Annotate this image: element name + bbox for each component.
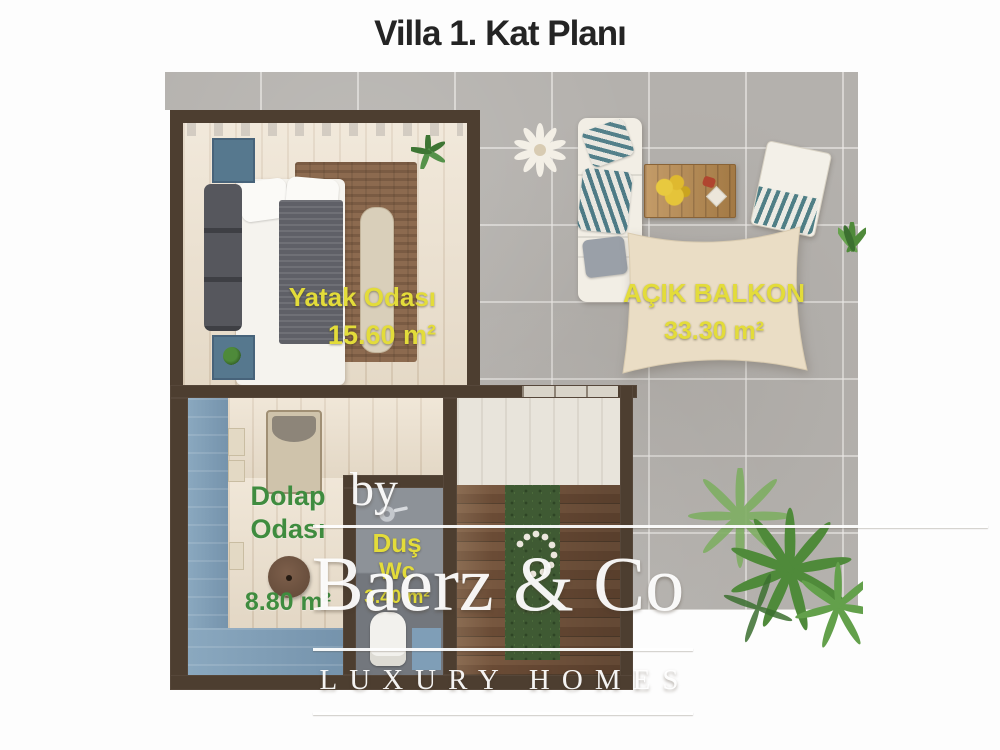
coffee-table — [644, 164, 736, 218]
watermark-by: by — [350, 462, 398, 517]
watermark-brand: Baerz & Co — [300, 538, 696, 630]
potted-plant — [223, 347, 241, 365]
watermark-rule-bottom — [313, 712, 693, 715]
floor-plan-screenshot: Villa 1. Kat Planı — [0, 0, 1000, 750]
flower-ornament — [512, 122, 568, 178]
fern-plants — [688, 468, 863, 653]
balcony-label: AÇIK BALKON 33.30 m² — [618, 278, 810, 347]
vanity-mirror — [272, 416, 316, 442]
bedroom-area: 15.60 m² — [270, 320, 436, 350]
nightstand — [212, 138, 255, 183]
balcony-door — [522, 386, 618, 397]
flower-decor — [653, 173, 691, 207]
watermark-tagline: LUXURY HOMES — [305, 660, 705, 700]
watermark-rule-top — [313, 525, 988, 528]
wall-stairs-left — [443, 398, 457, 675]
headboard-cushions — [204, 184, 242, 331]
wall-left-outer — [170, 398, 188, 690]
balcony-area: 33.30 m² — [618, 316, 810, 347]
bedroom-label: Yatak Odası 15.60 m² — [270, 282, 436, 350]
table-decor — [706, 186, 727, 207]
shelf-item — [229, 542, 244, 570]
hallway-floor — [228, 398, 443, 478]
page-title: Villa 1. Kat Planı — [0, 14, 1000, 54]
closet-name-line1: Dolap — [240, 480, 336, 513]
plant — [411, 135, 445, 169]
bedroom-room — [170, 110, 480, 398]
closet-label: Dolap Odası — [240, 480, 336, 546]
shelf-item — [228, 460, 245, 482]
shelf-item — [228, 428, 245, 456]
balcony-name: AÇIK BALKON — [618, 278, 810, 309]
watermark-rule-middle — [313, 648, 693, 651]
bedroom-name: Yatak Odası — [270, 282, 436, 312]
plant — [838, 222, 866, 270]
stair-landing — [457, 398, 620, 485]
striped-pillow — [581, 118, 635, 169]
